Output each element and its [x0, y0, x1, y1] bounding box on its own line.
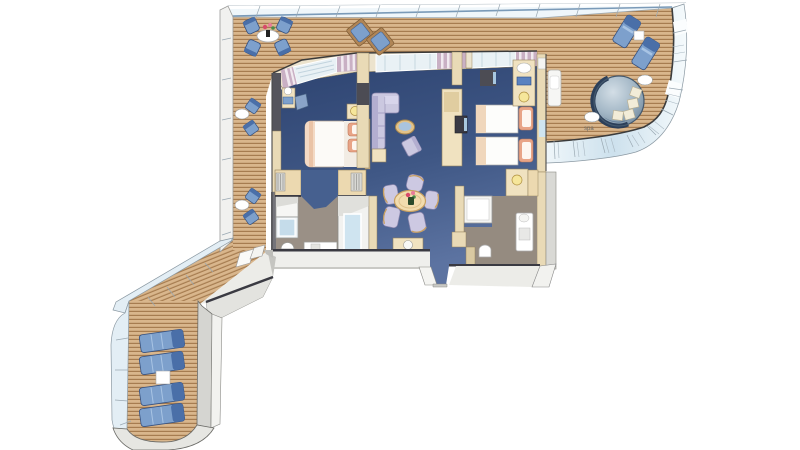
svg-text:spa: spa — [584, 126, 594, 132]
